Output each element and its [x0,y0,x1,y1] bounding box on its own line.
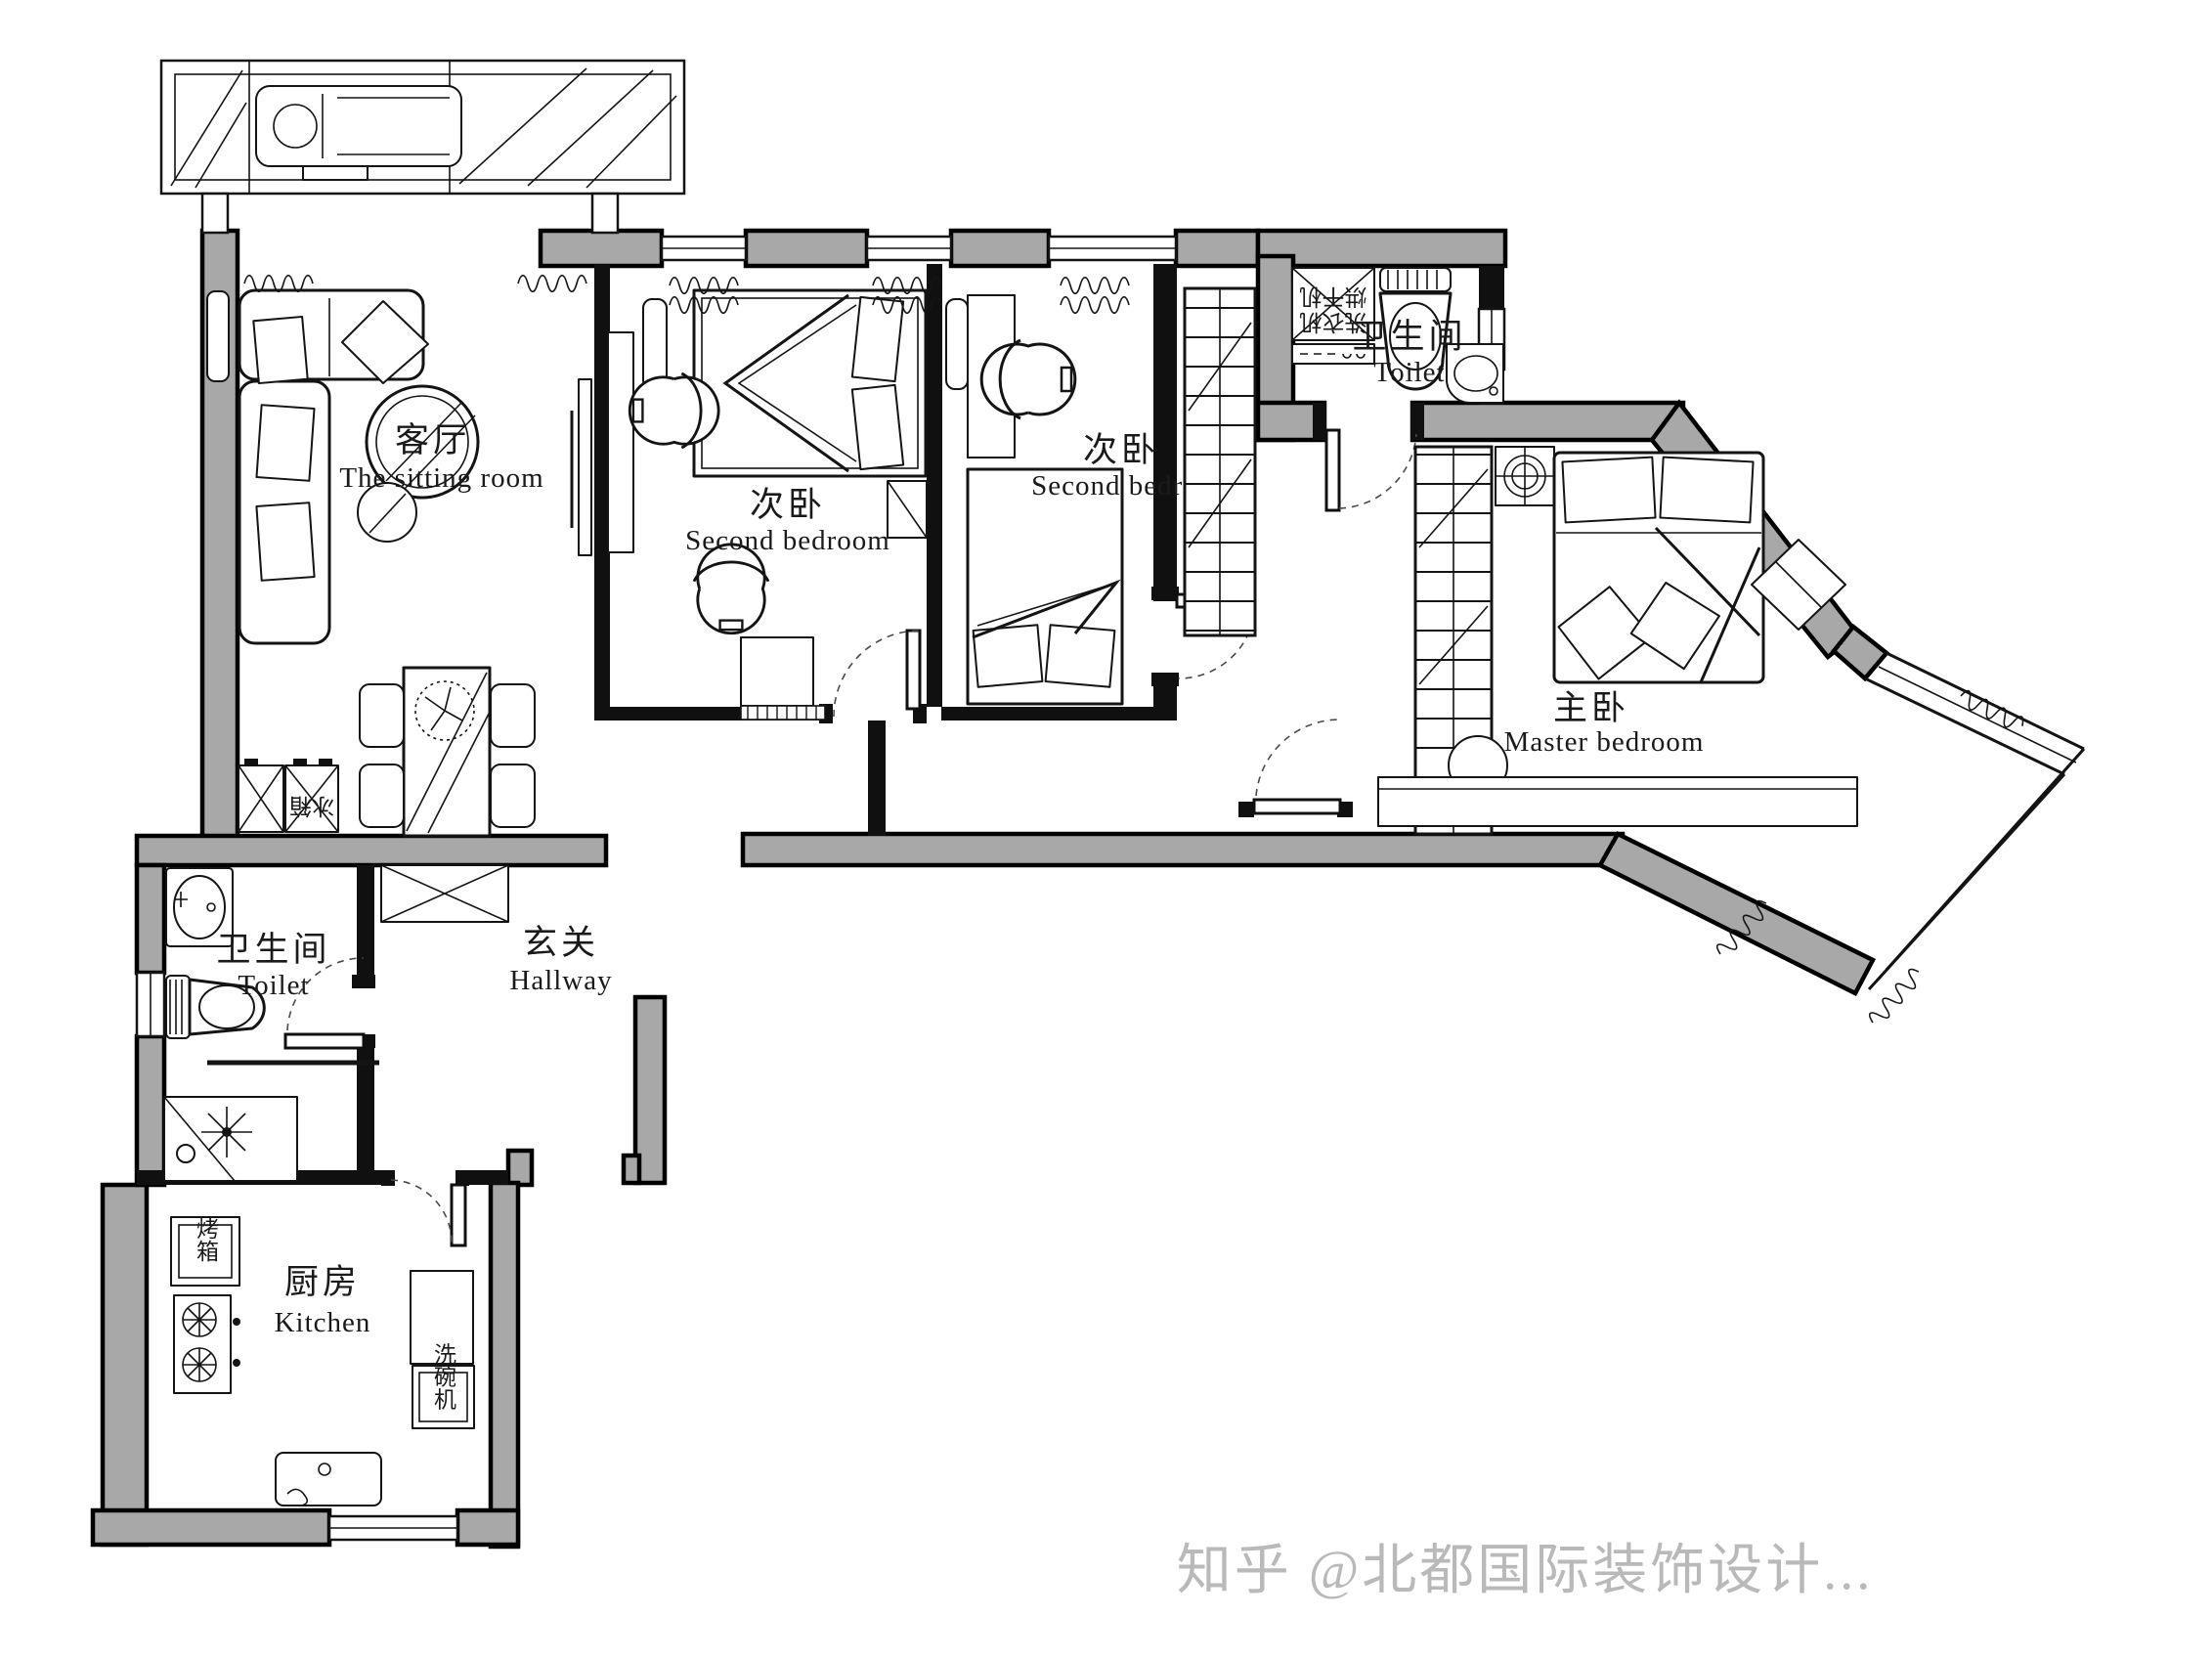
window-bed1-b [867,237,951,260]
oven-label: 烤箱 [194,1217,220,1262]
window-bay-se [1869,749,2084,989]
door-bedroom1 [819,631,927,723]
fridge-cabinet: 冰箱 [239,759,338,832]
master-ac-unit [1496,447,1554,505]
wall-kitchen-stub [508,1151,532,1185]
wall-toilet2-left-a [137,865,164,973]
wall-entry-foot [624,1156,639,1183]
wall-bed2-bottom [941,707,1153,720]
room-hallway: 玄关 Hallway [381,865,613,996]
shower-area [164,1063,379,1181]
master-label-zh: 主卧 [1553,689,1629,727]
room-master: 主卧 Master bedroom [1378,447,2026,1028]
shower-head-icon [201,1107,252,1157]
door-toilet-top [1313,403,1424,510]
sitting-room-label-zh: 客厅 [395,421,471,459]
bay-connector-right [592,194,618,233]
dishwasher-label: 洗碗机 [431,1343,457,1411]
kitchen-island-sink [276,1453,381,1506]
oven: 烤箱 [171,1217,239,1286]
wall-master-top-b [1412,403,1683,440]
bedroom1-label-en: Second bedroom [685,525,890,556]
fridge-label: 冰箱 [289,794,334,818]
window-kitchen [329,1516,457,1540]
toilet-top-label-zh: 卫生间 [1352,318,1466,356]
radiator-bed2 [946,299,968,389]
window-toilet-lower [137,973,164,1036]
master-label-en: Master bedroom [1504,726,1705,758]
tv-panel [572,379,591,555]
bedroom1-label-zh: 次卧 [750,486,826,524]
door-master [1238,720,1353,817]
wall-kitchen-bottom-a [93,1510,329,1545]
bay-connector-left [202,194,228,233]
master-bed [1552,453,1763,685]
shelf-bed1 [608,332,633,552]
bay-window [161,61,684,233]
wall-corridor-south [743,834,1623,865]
wall-top-d [1176,231,1258,266]
wall-corridor-stub [868,720,886,836]
kitchen-label-en: Kitchen [275,1307,371,1338]
chair-bed1-b [694,545,768,633]
sitting-room-label-en: The sitting room [339,462,543,494]
wall-kitchen-bottom-b [457,1510,518,1545]
wall-kitchen-door-stub [469,1170,508,1185]
radiator-bed1 [643,299,667,389]
wall-toilet-right-a [1479,266,1504,309]
dining-set [360,668,535,836]
floorplan-canvas: 冰箱 客厅 The sitting room 次卧 Second bedroom [0,0,2212,1659]
hallway-label-zh: 玄关 [523,924,599,962]
wall-kitchen-right [491,1183,518,1547]
bed1 [694,290,926,476]
floorplan-svg: 冰箱 客厅 The sitting room 次卧 Second bedroom [0,0,2212,1659]
wall-kitchen-left [103,1185,147,1545]
room-toilet-lower: 卫生间 Toilet [164,868,379,1181]
chair-bed1-a [629,373,718,448]
room-kitchen: 烤箱 洗碗机 厨房 Kitchen [171,1217,474,1506]
toilet-lower-label-en: Toilet [238,970,309,1001]
room-sitting: 冰箱 客厅 The sitting room [207,276,591,836]
hallway-label-en: Hallway [509,965,612,996]
toilet-lower-label-zh: 卫生间 [216,931,330,969]
wall-toilet2-right-b [357,1048,374,1185]
wall-top-a [541,231,662,266]
radiator-sitting [207,291,229,381]
window-bay-ne [1865,653,2084,774]
wall-divider-bed1-bed2 [927,264,942,707]
corridor-closet [1185,288,1255,635]
window-bed1-a [662,237,746,260]
wall-toilet2-right-a [357,865,374,975]
hallway-cabinet [381,865,508,922]
window-bed2 [1049,237,1176,260]
master-bench [1378,777,1857,826]
room-bedroom1: 次卧 Second bedroom [608,278,941,720]
door-kitchen [381,1170,469,1245]
wall-top-b [746,231,867,266]
wall-master-diag-se [1600,834,1873,993]
desk-bed1 [694,545,825,720]
bed2 [968,469,1122,704]
kitchen-label-zh: 厨房 [284,1263,361,1301]
bedroom2-label-zh: 次卧 [1083,431,1159,469]
stove [174,1295,240,1393]
wall-top-c [951,231,1049,266]
watermark-text: 知乎 @北都国际装饰设计... [1177,1541,1874,1601]
chair-bed2 [981,340,1075,418]
wall-hall-top-left [137,836,606,865]
wall-toilet2-left-b [137,1036,164,1185]
room-toilet-top: 烘干机 洗衣机 卫生间 Toilet [1292,268,1503,403]
toilet-top-label-en: Toilet [1373,357,1445,388]
bay-window-seat [256,86,461,180]
dryer-label: 烘干机 [1300,284,1367,309]
